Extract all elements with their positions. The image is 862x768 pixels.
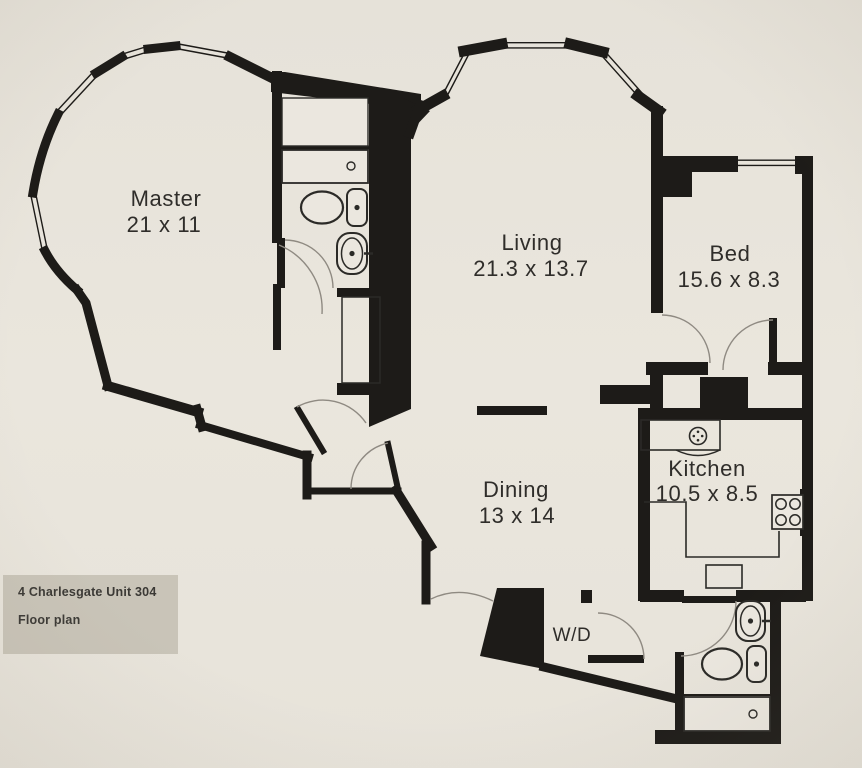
living-room-dims: 21.3 x 13.7 bbox=[473, 256, 588, 281]
master-room-dims: 21 x 11 bbox=[127, 212, 202, 237]
dining-room-dims: 13 x 14 bbox=[479, 503, 555, 528]
toilet-icon bbox=[702, 646, 766, 682]
kitchen-room-name: Kitchen bbox=[668, 456, 746, 481]
kitchen-room-dims: 10.5 x 8.5 bbox=[656, 481, 759, 506]
bed-room-name: Bed bbox=[710, 241, 751, 266]
stove-icon bbox=[772, 495, 803, 529]
living-dining-stub-wall bbox=[477, 406, 547, 415]
living-room-name: Living bbox=[501, 230, 562, 255]
dining-room-name: Dining bbox=[483, 477, 549, 502]
laundry-label: W/D bbox=[553, 625, 592, 646]
footer-plan-title: Floor plan bbox=[18, 613, 80, 627]
footer-address: 4 Charlesgate Unit 304 bbox=[18, 585, 156, 599]
floor-plan: Master 21 x 11 Living 21.3 x 13.7 Bed 15… bbox=[0, 0, 862, 768]
shower-pocket bbox=[282, 98, 368, 146]
toilet-icon bbox=[301, 189, 367, 226]
bathtub-icon bbox=[684, 697, 770, 731]
master-room-name: Master bbox=[131, 186, 202, 211]
floor-plan-page: Master 21 x 11 Living 21.3 x 13.7 Bed 15… bbox=[0, 0, 862, 768]
bathtub-icon bbox=[282, 150, 368, 183]
footer-label-box: 4 Charlesgate Unit 304 Floor plan bbox=[3, 575, 178, 654]
bed-room-dims: 15.6 x 8.3 bbox=[678, 267, 781, 292]
